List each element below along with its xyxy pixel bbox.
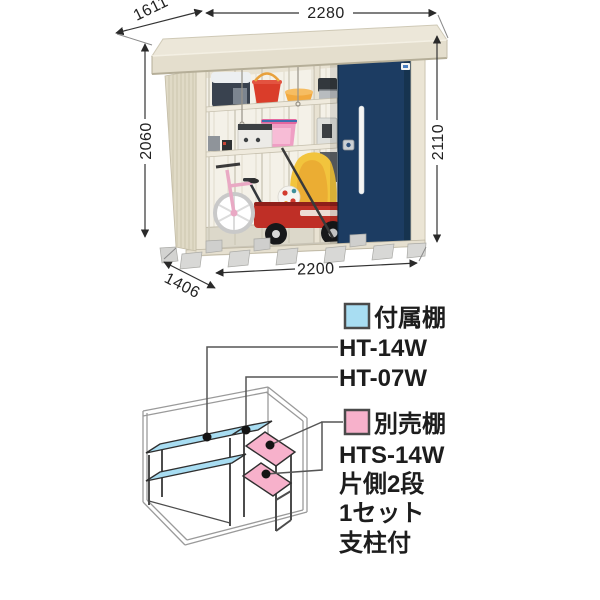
left-wall (165, 60, 196, 260)
dim-body-width: 2200 (297, 260, 335, 278)
door-lock (343, 140, 354, 150)
included-shelf-label: 付属棚 (374, 304, 446, 332)
sliding-door (338, 50, 411, 249)
included-model-1: HT-14W (339, 335, 427, 362)
product-image: 1611 2280 2060 2110 2200 1406 (0, 0, 600, 600)
included-shelf-swatch (345, 304, 369, 328)
dim-height-left: 2060 (138, 122, 155, 160)
shelf-layout-diagram (143, 347, 343, 545)
door-handle (359, 106, 364, 194)
dim-body-depth: 1406 (161, 270, 202, 302)
shed-canvas: 1611 2280 2060 2110 2200 1406 (0, 0, 600, 600)
optional-shelf-swatch (345, 410, 369, 434)
optional-note-2: 1セット (339, 500, 424, 527)
pet-carrier (211, 72, 251, 107)
white-machine (238, 124, 272, 151)
optional-note-3: 支柱付 (339, 530, 411, 557)
dim-height-right: 2110 (430, 124, 447, 160)
optional-note-1: 片側2段 (339, 470, 424, 498)
optional-shelf-label: 別売棚 (374, 410, 446, 438)
dim-roof-width: 2280 (307, 5, 345, 22)
included-model-2: HT-07W (339, 365, 427, 392)
shed-illustration (152, 25, 447, 269)
right-front-pillar (411, 49, 425, 244)
optional-model: HTS-14W (339, 442, 445, 469)
shelf-legend: 付属棚 HT-14W HT-07W 別売棚 HTS-14W 片側2段 1セット … (339, 304, 446, 557)
left-front-pillar (196, 69, 206, 251)
